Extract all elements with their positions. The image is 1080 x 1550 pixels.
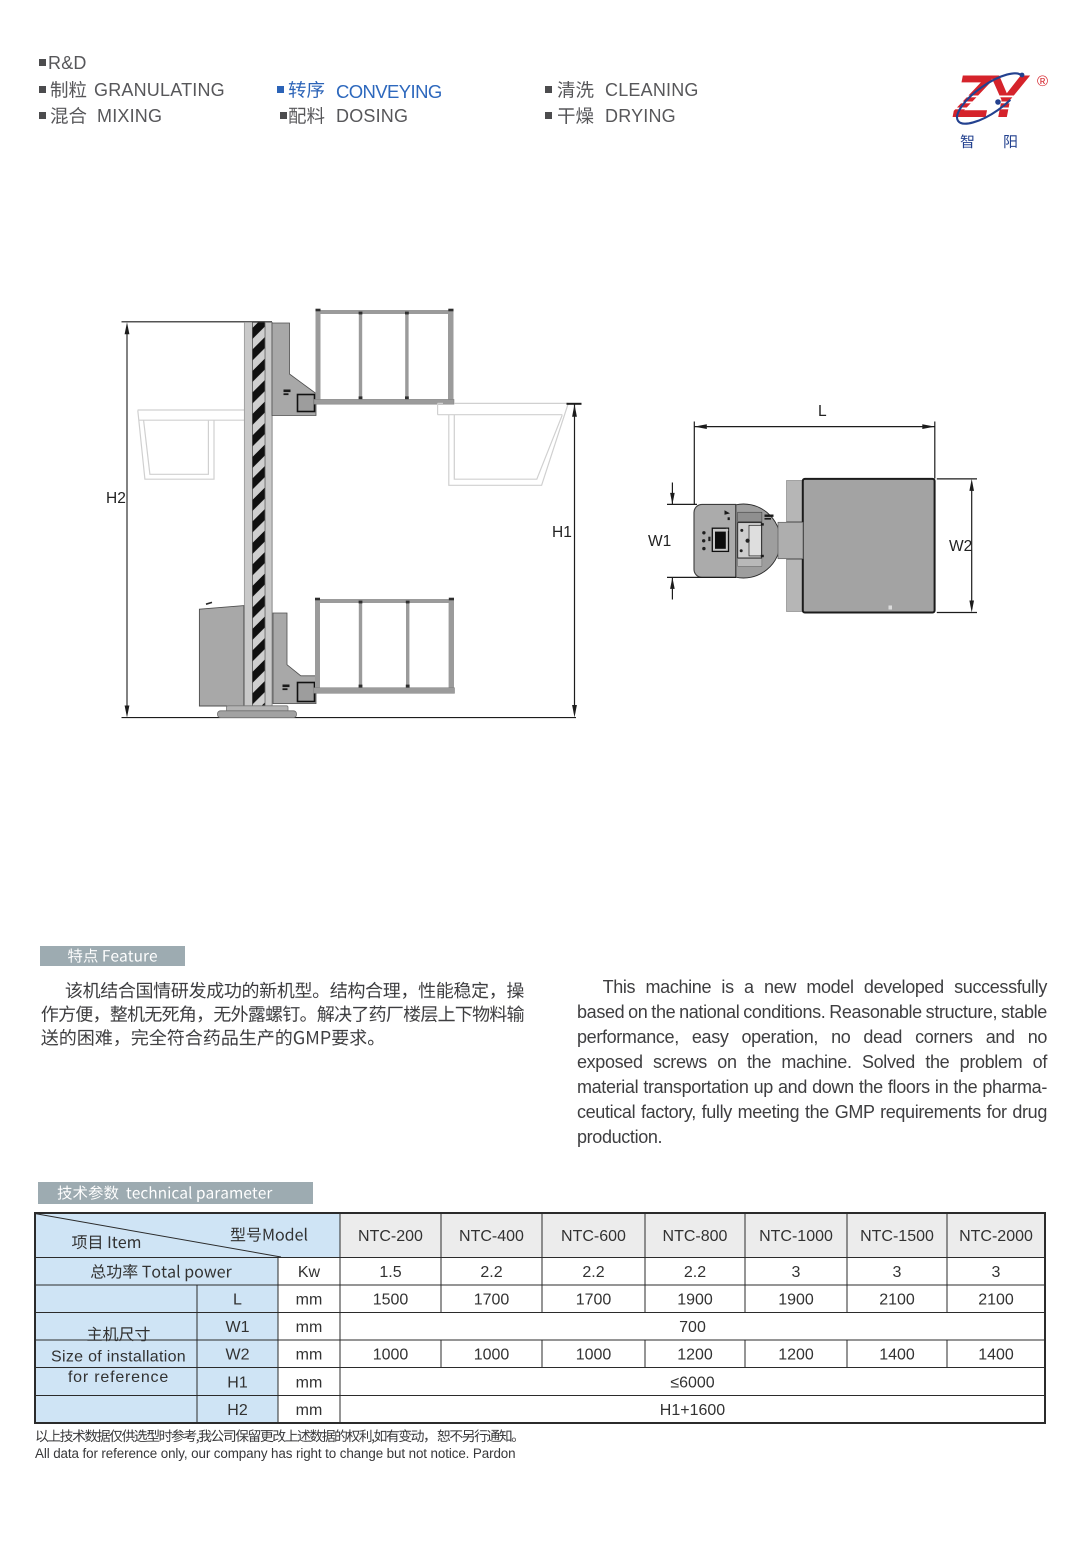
svg-text:for reference: for reference	[68, 1369, 169, 1386]
svg-text:1000: 1000	[474, 1347, 510, 1364]
svg-text:1700: 1700	[474, 1292, 510, 1309]
svg-text:3: 3	[992, 1264, 1001, 1281]
svg-text:Size of installation: Size of installation	[51, 1349, 186, 1366]
svg-text:Kw: Kw	[298, 1264, 321, 1281]
svg-text:2.2: 2.2	[480, 1264, 502, 1281]
svg-text:NTC-200: NTC-200	[358, 1228, 423, 1245]
svg-text:H2: H2	[227, 1402, 248, 1419]
svg-text:1500: 1500	[373, 1292, 409, 1309]
svg-text:NTC-2000: NTC-2000	[959, 1228, 1033, 1245]
svg-text:1400: 1400	[978, 1347, 1014, 1364]
svg-text:1000: 1000	[373, 1347, 409, 1364]
svg-text:1200: 1200	[778, 1347, 814, 1364]
svg-text:W2: W2	[226, 1347, 250, 1364]
svg-text:W2: W2	[949, 538, 972, 555]
svg-text:2.2: 2.2	[684, 1264, 706, 1281]
svg-text:1900: 1900	[778, 1292, 814, 1309]
svg-text:NTC-400: NTC-400	[459, 1228, 524, 1245]
svg-text:3: 3	[893, 1264, 902, 1281]
svg-text:1400: 1400	[879, 1347, 915, 1364]
svg-text:NTC-1500: NTC-1500	[860, 1228, 934, 1245]
svg-text:H1+1600: H1+1600	[660, 1402, 725, 1419]
svg-text:700: 700	[679, 1319, 706, 1336]
svg-text:NTC-1000: NTC-1000	[759, 1228, 833, 1245]
svg-text:L: L	[818, 403, 827, 420]
svg-text:≤6000: ≤6000	[670, 1375, 714, 1392]
svg-text:mm: mm	[296, 1375, 323, 1392]
svg-text:2.2: 2.2	[582, 1264, 604, 1281]
svg-text:1200: 1200	[677, 1347, 713, 1364]
svg-text:NTC-600: NTC-600	[561, 1228, 626, 1245]
svg-text:2100: 2100	[978, 1292, 1014, 1309]
svg-text:H1: H1	[552, 524, 572, 541]
svg-text:W1: W1	[648, 533, 671, 550]
svg-text:mm: mm	[296, 1347, 323, 1364]
svg-text:NTC-800: NTC-800	[663, 1228, 728, 1245]
svg-text:mm: mm	[296, 1402, 323, 1419]
svg-text:L: L	[233, 1292, 242, 1309]
svg-text:H1: H1	[227, 1375, 248, 1392]
svg-text:3: 3	[792, 1264, 801, 1281]
svg-text:1.5: 1.5	[379, 1264, 401, 1281]
svg-text:1700: 1700	[576, 1292, 612, 1309]
svg-text:W1: W1	[226, 1319, 250, 1336]
svg-text:H2: H2	[106, 490, 126, 507]
svg-text:1900: 1900	[677, 1292, 713, 1309]
svg-text:1000: 1000	[576, 1347, 612, 1364]
svg-text:2100: 2100	[879, 1292, 915, 1309]
svg-text:mm: mm	[296, 1292, 323, 1309]
svg-text:mm: mm	[296, 1319, 323, 1336]
